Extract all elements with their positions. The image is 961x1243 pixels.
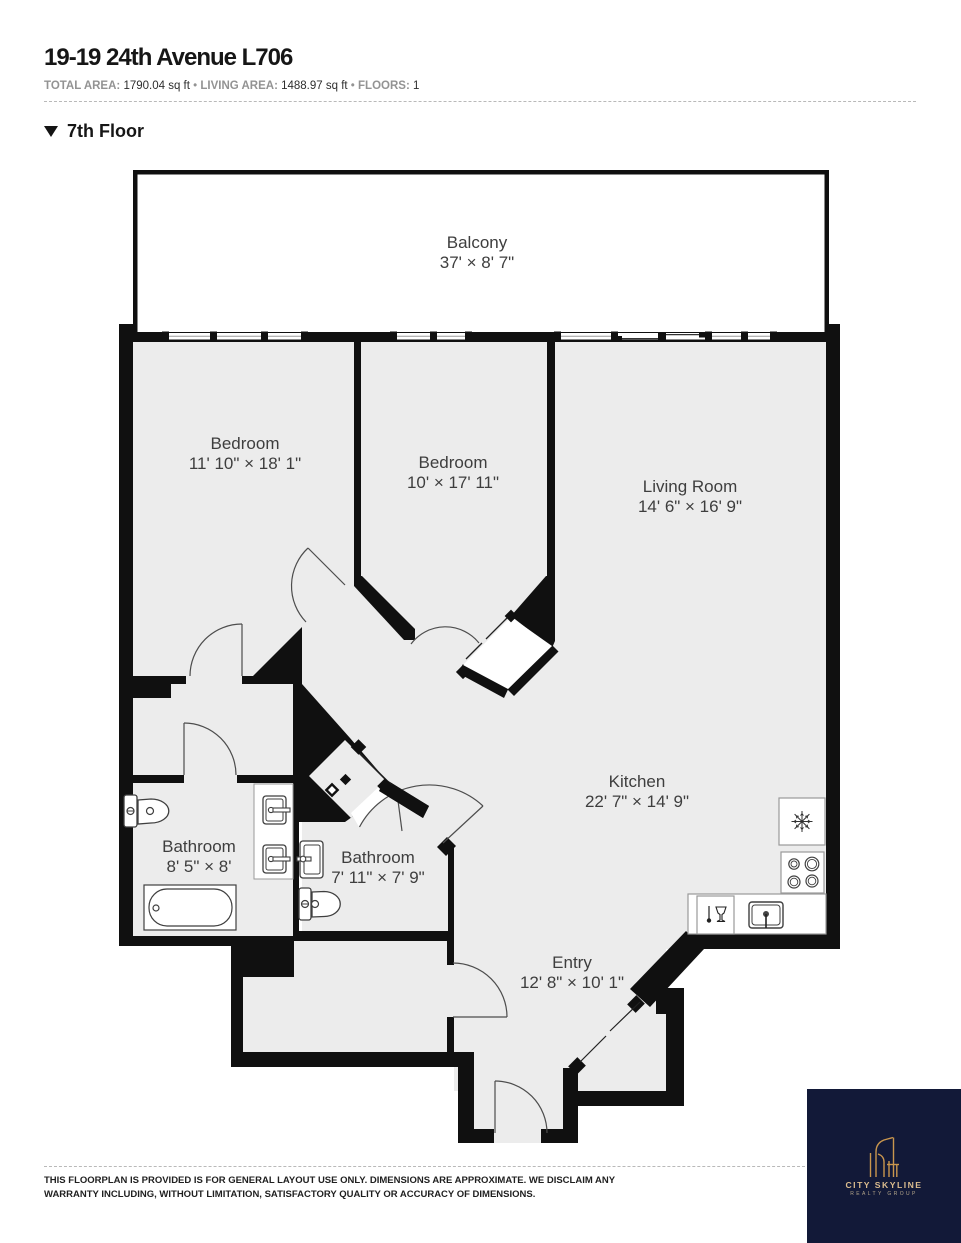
svg-text:Kitchen: Kitchen	[609, 772, 666, 791]
svg-text:Entry: Entry	[552, 953, 592, 972]
svg-text:Bedroom: Bedroom	[211, 434, 280, 453]
svg-text:22' 7" × 14' 9": 22' 7" × 14' 9"	[585, 792, 689, 811]
svg-text:7' 11" × 7' 9": 7' 11" × 7' 9"	[331, 868, 424, 887]
svg-text:Bathroom: Bathroom	[341, 848, 415, 867]
svg-text:37' × 8' 7": 37' × 8' 7"	[440, 253, 514, 272]
svg-text:Balcony: Balcony	[447, 233, 508, 252]
svg-text:Bathroom: Bathroom	[162, 837, 236, 856]
svg-text:12' 8" × 10' 1": 12' 8" × 10' 1"	[520, 973, 624, 992]
svg-text:8' 5" × 8': 8' 5" × 8'	[167, 857, 232, 876]
svg-text:Living Room: Living Room	[643, 477, 738, 496]
svg-text:14' 6" × 16' 9": 14' 6" × 16' 9"	[638, 497, 742, 516]
svg-text:Bedroom: Bedroom	[419, 453, 488, 472]
svg-text:11' 10" × 18' 1": 11' 10" × 18' 1"	[189, 454, 301, 473]
svg-text:10' × 17' 11": 10' × 17' 11"	[407, 473, 499, 492]
